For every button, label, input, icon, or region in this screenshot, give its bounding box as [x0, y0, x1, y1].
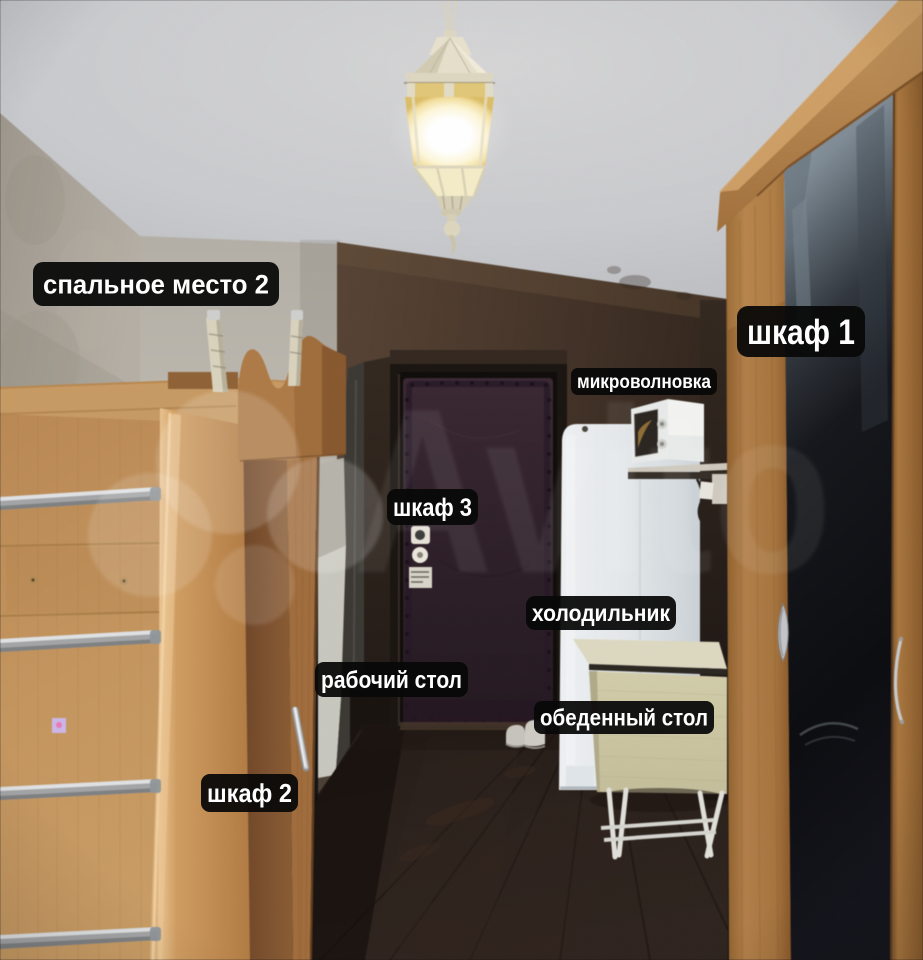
svg-text:спальное место 2: спальное место 2	[43, 270, 269, 300]
svg-text:шкаф 2: шкаф 2	[207, 778, 292, 808]
svg-text:рабочий стол: рабочий стол	[321, 667, 462, 694]
svg-text:микроволновка: микроволновка	[577, 372, 711, 393]
svg-text:шкаф 1: шкаф 1	[747, 313, 855, 352]
svg-text:обеденный стол: обеденный стол	[540, 705, 708, 731]
svg-text:холодильник: холодильник	[532, 600, 670, 626]
svg-text:шкаф 3: шкаф 3	[393, 494, 472, 522]
